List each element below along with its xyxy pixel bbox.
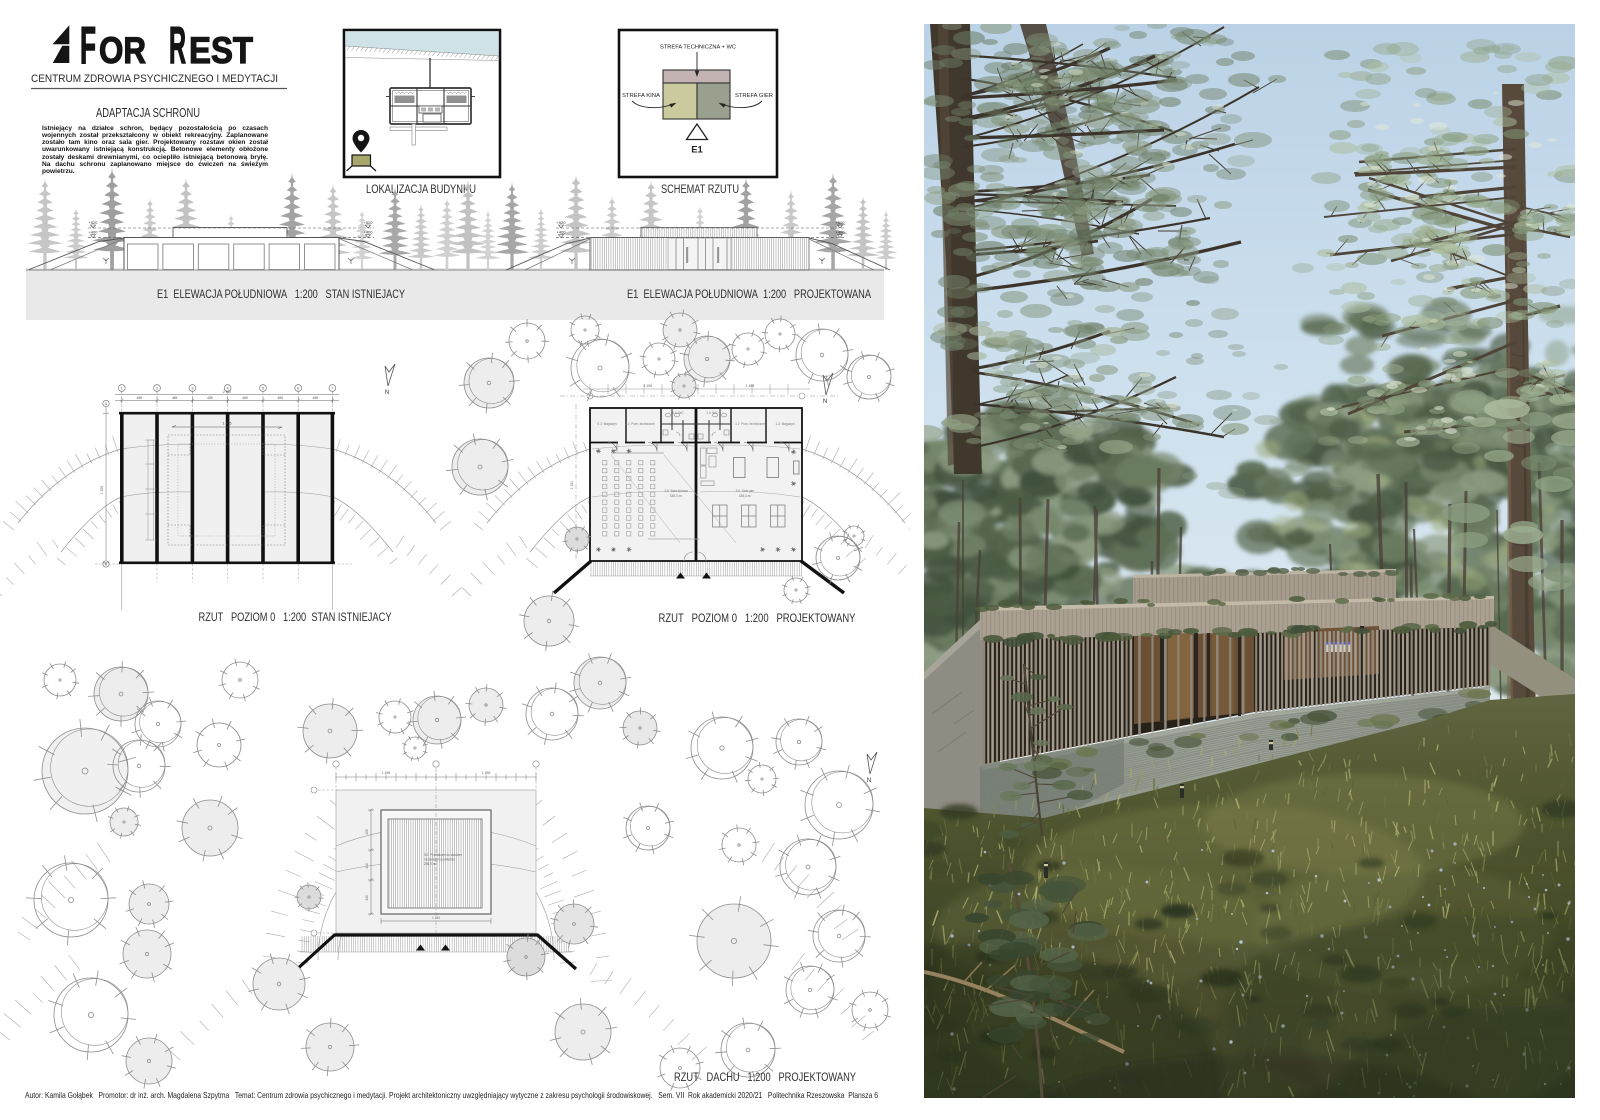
- svg-text:2: 2: [156, 387, 158, 391]
- svg-text:E1 ELEWACJA POŁUDNIOWA 1:200: E1 ELEWACJA POŁUDNIOWA 1:200 PROJEKTOWAN…: [627, 289, 871, 301]
- svg-text:485: 485: [277, 396, 283, 400]
- svg-text:+520: +520: [363, 220, 373, 225]
- svg-text:1 520: 1 520: [570, 481, 574, 490]
- svg-text:3.0 Przestrzen do cwiczen: 3.0 Przestrzen do cwiczen: [424, 853, 462, 857]
- svg-text:410: 410: [365, 863, 369, 869]
- svg-text:0.3 Magazyn: 0.3 Magazyn: [597, 422, 616, 426]
- svg-text:1 405: 1 405: [223, 422, 232, 426]
- svg-text:485: 485: [172, 396, 178, 400]
- svg-text:1: 1: [121, 387, 123, 391]
- svg-text:E1: E1: [691, 145, 703, 156]
- svg-text:400: 400: [365, 829, 369, 835]
- svg-text:+400: +400: [88, 230, 98, 235]
- svg-text:5: 5: [262, 387, 264, 391]
- svg-text:485: 485: [207, 396, 213, 400]
- svg-text:7: 7: [331, 387, 333, 391]
- svg-text:1 455: 1 455: [746, 384, 755, 388]
- svg-text:E1 ELEWACJA POŁUDNIOWA 1:20: E1 ELEWACJA POŁUDNIOWA 1:200 STAN ISTNIE…: [157, 289, 405, 301]
- svg-text:SCHEMAT RZUTU: SCHEMAT RZUTU: [661, 184, 739, 196]
- svg-text:RZUT POZIOM 0 1:200 PROJ: RZUT POZIOM 0 1:200 PROJEKTOWANY: [659, 613, 856, 625]
- svg-text:N: N: [867, 778, 871, 784]
- svg-text:RZUT POZIOM 0 1:200 STAN: RZUT POZIOM 0 1:200 STAN ISTNIEJACY: [199, 612, 392, 624]
- svg-text:1.2 Pom. techniczne: 1.2 Pom. techniczne: [735, 422, 765, 426]
- svg-text:2 910: 2 910: [223, 390, 231, 394]
- svg-text:+400: +400: [556, 230, 566, 235]
- svg-text:1 455: 1 455: [382, 771, 391, 775]
- svg-text:LOKALIZACJA BUDYNKU: LOKALIZACJA BUDYNKU: [366, 184, 476, 196]
- svg-text:STREFA GIER: STREFA GIER: [735, 93, 773, 99]
- svg-text:485: 485: [137, 396, 143, 400]
- svg-text:485: 485: [313, 396, 319, 400]
- svg-text:STREFA TECHNICZNA + WC: STREFA TECHNICZNA + WC: [660, 45, 736, 51]
- svg-text:485: 485: [242, 396, 248, 400]
- svg-text:1 520: 1 520: [100, 486, 104, 494]
- svg-text:235,0 m²: 235,0 m²: [424, 862, 437, 866]
- svg-text:Autor: Kamila Gołąbek Promot: Autor: Kamila Gołąbek Promotor: dr inż. …: [25, 1090, 878, 1100]
- svg-text:STREFA KINA: STREFA KINA: [622, 93, 660, 99]
- svg-text:+520: +520: [556, 220, 566, 225]
- svg-text:1 455: 1 455: [482, 771, 491, 775]
- svg-text:N: N: [823, 399, 827, 405]
- svg-text:3: 3: [191, 387, 193, 391]
- svg-text:1.3 Magazyn: 1.3 Magazyn: [775, 422, 794, 426]
- svg-text:+520: +520: [88, 220, 98, 225]
- svg-text:na swiezym powietrzu: na swiezym powietrzu: [424, 858, 455, 862]
- svg-text:188,3 m²: 188,3 m²: [739, 494, 752, 498]
- svg-text:RZUT DACHU 1:200 PROJEKT: RZUT DACHU 1:200 PROJEKTOWANY: [674, 1072, 856, 1084]
- svg-text:6: 6: [297, 387, 299, 391]
- svg-text:0.4 WC: 0.4 WC: [672, 411, 684, 415]
- svg-text:340: 340: [365, 895, 369, 901]
- svg-text:N: N: [385, 390, 389, 396]
- svg-text:2.5 Sala gier: 2.5 Sala gier: [736, 489, 756, 493]
- svg-text:0.2 Pom. techniczne: 0.2 Pom. techniczne: [625, 422, 655, 426]
- svg-text:+400: +400: [363, 230, 373, 235]
- svg-text:+400: +400: [835, 230, 845, 235]
- svg-text:1.4 WC: 1.4 WC: [706, 411, 718, 415]
- svg-text:1 455: 1 455: [644, 384, 653, 388]
- svg-text:+520: +520: [835, 220, 845, 225]
- svg-text:188,3 m²: 188,3 m²: [670, 494, 683, 498]
- svg-text:1.5 Sala kinowa: 1.5 Sala kinowa: [664, 489, 688, 493]
